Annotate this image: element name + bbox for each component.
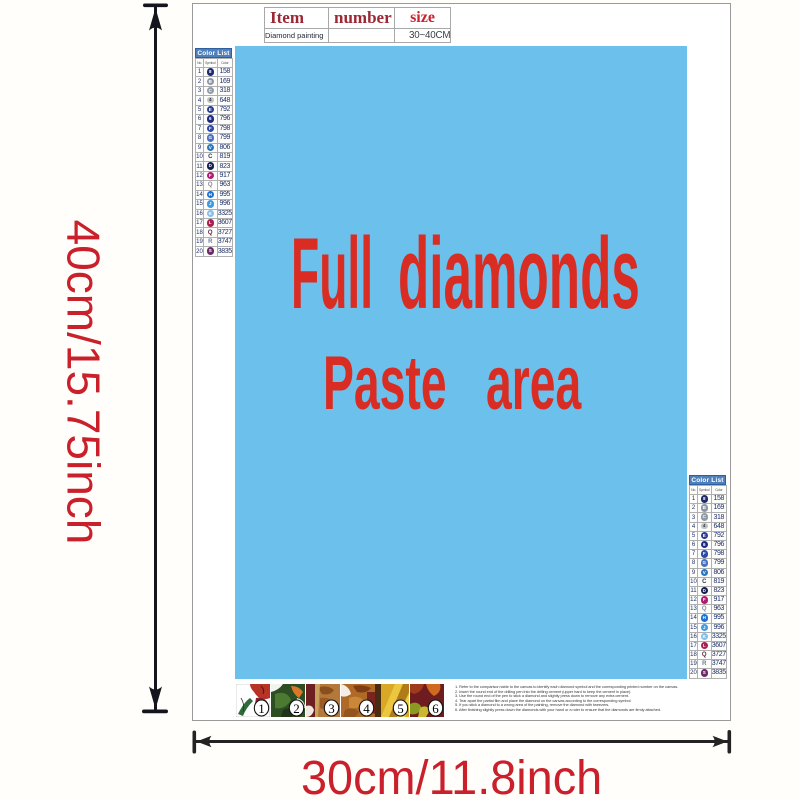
svg-text:2: 2 [293, 701, 300, 716]
svg-text:4: 4 [363, 701, 370, 716]
svg-text:3: 3 [328, 701, 335, 716]
svg-text:5: 5 [397, 701, 404, 716]
svg-text:1: 1 [258, 701, 265, 716]
svg-text:6: 6 [432, 701, 439, 716]
